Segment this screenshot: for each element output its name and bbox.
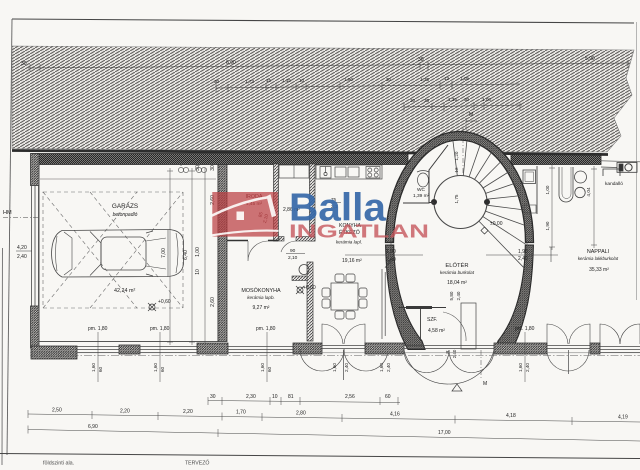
svg-text:60: 60 — [385, 394, 391, 400]
svg-text:2,40: 2,40 — [452, 349, 457, 358]
svg-text:6,90: 6,90 — [226, 60, 236, 66]
svg-text:HM: HM — [3, 210, 12, 216]
svg-text:1,73: 1,73 — [245, 79, 254, 84]
svg-text:1,35: 1,35 — [420, 77, 429, 82]
svg-text:60: 60 — [267, 366, 272, 372]
svg-text:M: M — [469, 112, 473, 118]
svg-text:30: 30 — [464, 97, 470, 102]
svg-text:17,00: 17,00 — [438, 430, 451, 436]
svg-text:2,40: 2,40 — [518, 256, 528, 262]
svg-text:2,40: 2,40 — [386, 257, 396, 263]
svg-text:2,40: 2,40 — [344, 363, 349, 372]
svg-text:30: 30 — [424, 98, 430, 103]
svg-text:±0,00: ±0,00 — [490, 221, 503, 227]
svg-text:1,20: 1,20 — [454, 151, 459, 160]
svg-text:kerámia lakkburkolat: kerámia lakkburkolat — [578, 256, 619, 261]
svg-text:12: 12 — [454, 167, 459, 173]
svg-text:2,40: 2,40 — [456, 291, 461, 300]
svg-text:2,20: 2,20 — [120, 408, 130, 414]
svg-text:20: 20 — [410, 98, 416, 103]
svg-text:1,15: 1,15 — [282, 78, 291, 83]
svg-text:M: M — [483, 381, 487, 387]
svg-text:GARÁZS: GARÁZS — [112, 201, 138, 210]
svg-text:4,04: 4,04 — [586, 187, 592, 197]
svg-text:18,04 m²: 18,04 m² — [447, 280, 467, 286]
svg-text:5,90: 5,90 — [585, 56, 595, 62]
svg-text:R: R — [445, 350, 450, 353]
svg-text:1,75: 1,75 — [454, 194, 459, 203]
svg-text:4,19: 4,19 — [618, 415, 628, 421]
svg-text:betonpadló: betonpadló — [113, 212, 138, 218]
svg-text:1,90: 1,90 — [545, 221, 550, 230]
svg-text:pm. 1,80: pm. 1,80 — [150, 326, 170, 332]
svg-text:30: 30 — [214, 79, 220, 84]
svg-text:6,40: 6,40 — [183, 250, 189, 260]
svg-text:pm. 1,80: pm. 1,80 — [88, 326, 108, 332]
svg-text:5,80: 5,80 — [449, 291, 454, 300]
svg-text:1,60: 1,60 — [260, 363, 265, 372]
svg-text:60: 60 — [98, 366, 103, 372]
svg-text:1,90: 1,90 — [518, 249, 528, 255]
svg-text:60: 60 — [160, 366, 165, 372]
svg-text:2,30: 2,30 — [246, 394, 256, 400]
svg-text:6,90: 6,90 — [88, 424, 98, 430]
svg-text:2,10: 2,10 — [288, 255, 298, 261]
svg-text:1,90: 1,90 — [386, 249, 396, 255]
svg-text:1,39 m²: 1,39 m² — [413, 193, 430, 199]
svg-text:+0,60: +0,60 — [158, 299, 171, 305]
svg-text:INGATLAN: INGATLAN — [289, 221, 429, 242]
svg-text:WC: WC — [417, 187, 426, 193]
svg-text:4,20: 4,20 — [17, 245, 27, 251]
svg-text:ELŐTÉR: ELŐTÉR — [445, 262, 468, 269]
svg-text:TERVEZŐ: TERVEZŐ — [185, 460, 209, 466]
svg-text:földszinti ala.: földszinti ala. — [43, 461, 74, 466]
svg-text:42,24 m²: 42,24 m² — [114, 288, 135, 294]
svg-text:1,60: 1,60 — [379, 363, 384, 372]
svg-text:kerámia lapb.: kerámia lapb. — [247, 295, 275, 300]
svg-text:2,40: 2,40 — [17, 254, 27, 260]
svg-text:1,35: 1,35 — [448, 97, 457, 102]
svg-text:4,18: 4,18 — [506, 413, 516, 419]
svg-text:30: 30 — [210, 394, 216, 400]
svg-text:9,27 m²: 9,27 m² — [253, 305, 270, 311]
svg-text:kerámia burkolat: kerámia burkolat — [440, 270, 475, 275]
svg-text:7,00: 7,00 — [161, 248, 167, 258]
svg-text:1,70: 1,70 — [236, 410, 246, 416]
svg-text:1,60: 1,60 — [91, 363, 96, 372]
svg-text:1,60: 1,60 — [332, 363, 337, 372]
svg-text:90: 90 — [290, 248, 296, 254]
svg-text:NAPPALI: NAPPALI — [587, 249, 609, 255]
svg-text:30: 30 — [21, 61, 27, 67]
svg-text:1,00: 1,00 — [195, 247, 201, 257]
svg-text:1,60: 1,60 — [153, 363, 158, 372]
svg-text:+0,60: +0,60 — [303, 285, 316, 291]
svg-text:10: 10 — [299, 78, 305, 83]
svg-text:30: 30 — [418, 57, 424, 63]
svg-text:2,40: 2,40 — [386, 363, 391, 372]
svg-text:12: 12 — [444, 76, 450, 81]
svg-text:2,56: 2,56 — [345, 394, 355, 400]
svg-text:10: 10 — [195, 269, 201, 275]
svg-text:2,50: 2,50 — [52, 408, 62, 414]
svg-text:pm. 1,80: pm. 1,80 — [256, 326, 276, 332]
svg-text:4,58 m²: 4,58 m² — [428, 328, 445, 334]
svg-text:1,00: 1,00 — [482, 97, 491, 102]
svg-text:1,05: 1,05 — [460, 76, 469, 81]
svg-text:SZF.: SZF. — [427, 317, 437, 323]
svg-text:2,20: 2,20 — [183, 409, 193, 415]
svg-text:kandalló: kandalló — [605, 181, 623, 187]
svg-text:81: 81 — [288, 394, 294, 400]
svg-text:1,90: 1,90 — [344, 77, 353, 82]
svg-text:pm. 1,80: pm. 1,80 — [515, 326, 535, 332]
svg-text:1,60: 1,60 — [518, 363, 523, 372]
svg-text:19,16 m²: 19,16 m² — [342, 258, 362, 264]
svg-text:4,16: 4,16 — [390, 412, 400, 418]
svg-text:15: 15 — [266, 78, 272, 83]
svg-text:35,33 m²: 35,33 m² — [589, 267, 609, 273]
svg-text:1,00: 1,00 — [545, 185, 550, 194]
svg-text:30: 30 — [386, 77, 392, 82]
svg-text:30: 30 — [210, 165, 216, 171]
svg-text:10: 10 — [272, 394, 278, 400]
svg-text:MOSÓKONYHA: MOSÓKONYHA — [241, 287, 281, 294]
svg-text:2,40: 2,40 — [525, 363, 530, 372]
svg-text:2,80: 2,80 — [296, 411, 306, 417]
svg-text:2,60: 2,60 — [210, 297, 216, 307]
